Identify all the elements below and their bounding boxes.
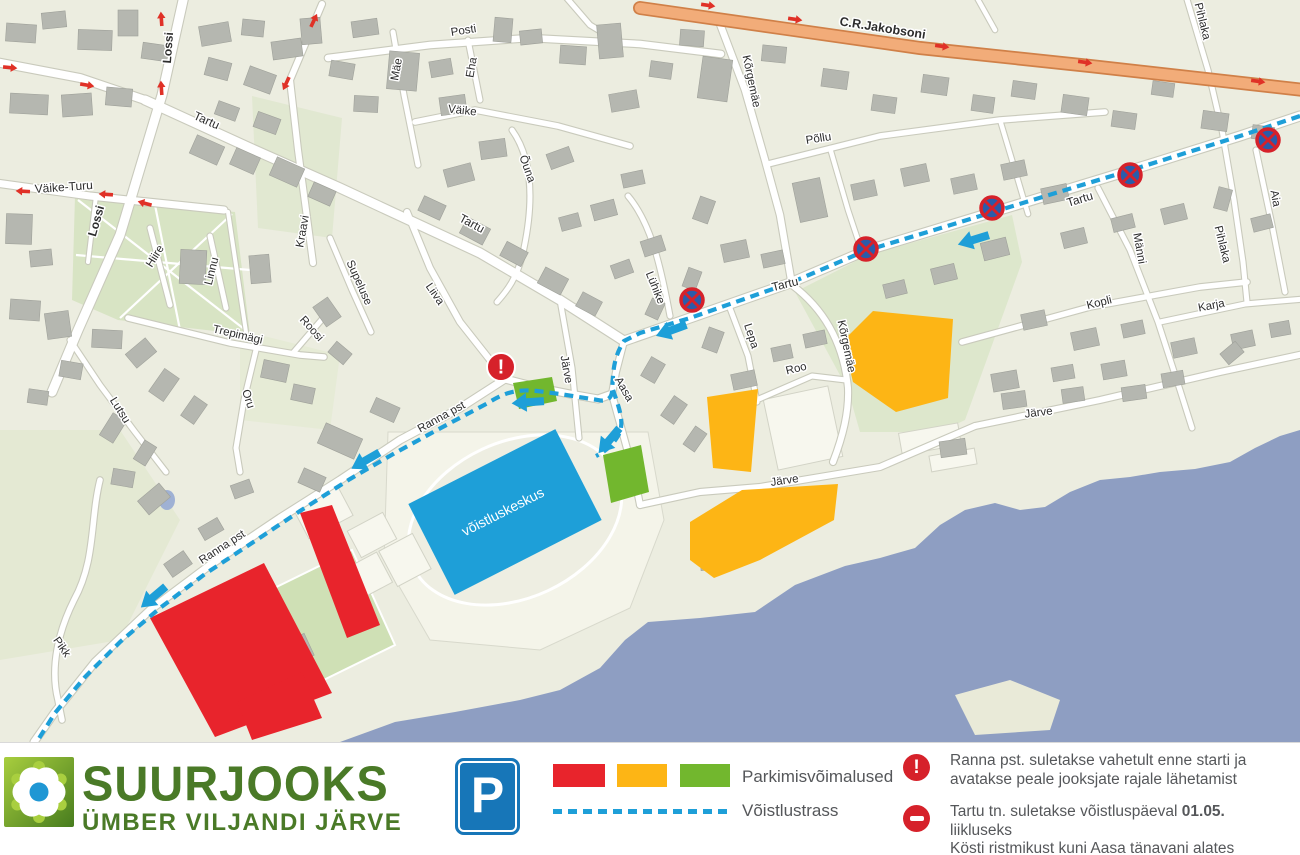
building	[1269, 320, 1291, 337]
no-stopping-sign-icon	[1119, 164, 1141, 186]
building	[493, 17, 513, 42]
building	[351, 18, 379, 37]
building	[597, 23, 624, 59]
map-canvas: ! LossiLossiTartuVäike-TuruHiireLinnuTre…	[0, 0, 1300, 742]
building	[1011, 80, 1037, 99]
building	[479, 138, 507, 159]
building	[971, 95, 995, 114]
building	[41, 11, 67, 29]
no-stopping-sign-icon	[981, 197, 1003, 219]
building	[5, 214, 32, 245]
legend-route-label: Võistlustrass	[742, 801, 838, 821]
building	[519, 29, 542, 45]
building	[1151, 81, 1175, 98]
notice-line: Kösti ristmikust kuni Aasa tänavani alat…	[950, 840, 1280, 855]
race-map-poster: ! LossiLossiTartuVäike-TuruHiireLinnuTre…	[0, 0, 1300, 855]
logo-flower-icon	[4, 757, 74, 827]
building	[939, 438, 967, 457]
building	[1111, 110, 1137, 129]
legend-parking-label: Parkimisvõimalused	[742, 767, 893, 787]
building	[921, 74, 949, 95]
building	[27, 389, 49, 406]
legend-route-dash	[553, 809, 729, 814]
building	[697, 56, 733, 102]
warning-icon: !	[903, 754, 930, 781]
legend-red-swatch	[553, 764, 605, 787]
event-title: SUURJOOKS ÜMBER VILJANDI JÄRVE	[82, 759, 402, 835]
legend-yellow-swatch	[617, 764, 667, 787]
building	[821, 68, 849, 89]
warning-glyph: !	[913, 758, 919, 777]
building	[649, 61, 673, 80]
notice-line: Ranna pst. suletakse vahetult enne start…	[950, 752, 1280, 771]
building	[271, 38, 303, 60]
no-stopping-sign-icon	[1257, 129, 1279, 151]
legend-footer: SUURJOOKS ÜMBER VILJANDI JÄRVE P Parkimi…	[0, 742, 1300, 855]
notice-text-part: liikluseks	[950, 822, 1012, 839]
building	[559, 45, 586, 65]
notice-ranna: ! Ranna pst. suletakse vahetult enne sta…	[903, 752, 1280, 789]
building	[59, 360, 83, 380]
building	[105, 87, 132, 107]
notice-ranna-text: Ranna pst. suletakse vahetult enne start…	[950, 752, 1280, 789]
building	[1061, 94, 1089, 115]
building	[679, 29, 704, 47]
building	[10, 93, 49, 115]
building	[1121, 384, 1147, 401]
building	[92, 329, 123, 349]
event-title-line1: SUURJOOKS	[82, 759, 402, 808]
parking-zone-yellow	[707, 389, 758, 472]
building	[1001, 390, 1027, 409]
notice-tartu-text: Tartu tn. suletakse võistluspäeval 01.05…	[950, 803, 1280, 855]
no-stopping-sign-icon	[855, 238, 877, 260]
building	[871, 94, 897, 113]
notice-tartu: Tartu tn. suletakse võistluspäeval 01.05…	[903, 803, 1280, 855]
building	[249, 254, 271, 284]
no-entry-icon	[903, 805, 930, 832]
notice-text-part: Kösti ristmikust kuni Aasa tänavani alat…	[950, 840, 1234, 855]
building	[241, 19, 265, 37]
building	[44, 310, 71, 339]
notice-line: Tartu tn. suletakse võistluspäeval 01.05…	[950, 803, 1280, 840]
building	[1201, 110, 1229, 131]
street-label: Lossi	[160, 32, 176, 64]
city-map: ! LossiLossiTartuVäike-TuruHiireLinnuTre…	[0, 0, 1300, 742]
building	[179, 249, 207, 284]
building	[761, 45, 787, 63]
logo-center-dot	[30, 783, 49, 802]
building	[29, 249, 53, 267]
event-logo	[4, 757, 74, 827]
building	[118, 10, 138, 36]
notice-line: avatakse peale jooksjate rajale lähetami…	[950, 771, 1280, 790]
event-title-line2: ÜMBER VILJANDI JÄRVE	[82, 811, 402, 835]
legend-green-swatch	[680, 764, 730, 787]
parking-sign-letter: P	[471, 770, 504, 824]
building	[429, 58, 453, 78]
warning-marker-icon: !	[487, 353, 515, 381]
notice-bold-text: 01.05.	[1182, 803, 1225, 820]
no-stopping-sign-icon	[681, 289, 703, 311]
building	[354, 95, 379, 112]
building	[111, 468, 135, 488]
building	[1061, 387, 1085, 404]
building	[9, 299, 40, 321]
notice-text-part: Tartu tn. suletakse võistluspäeval	[950, 803, 1182, 820]
building	[78, 29, 113, 50]
building	[61, 93, 92, 117]
building	[5, 23, 36, 43]
warning-glyph: !	[498, 357, 505, 379]
parking-sign-icon: P	[455, 758, 520, 835]
building	[300, 17, 322, 45]
